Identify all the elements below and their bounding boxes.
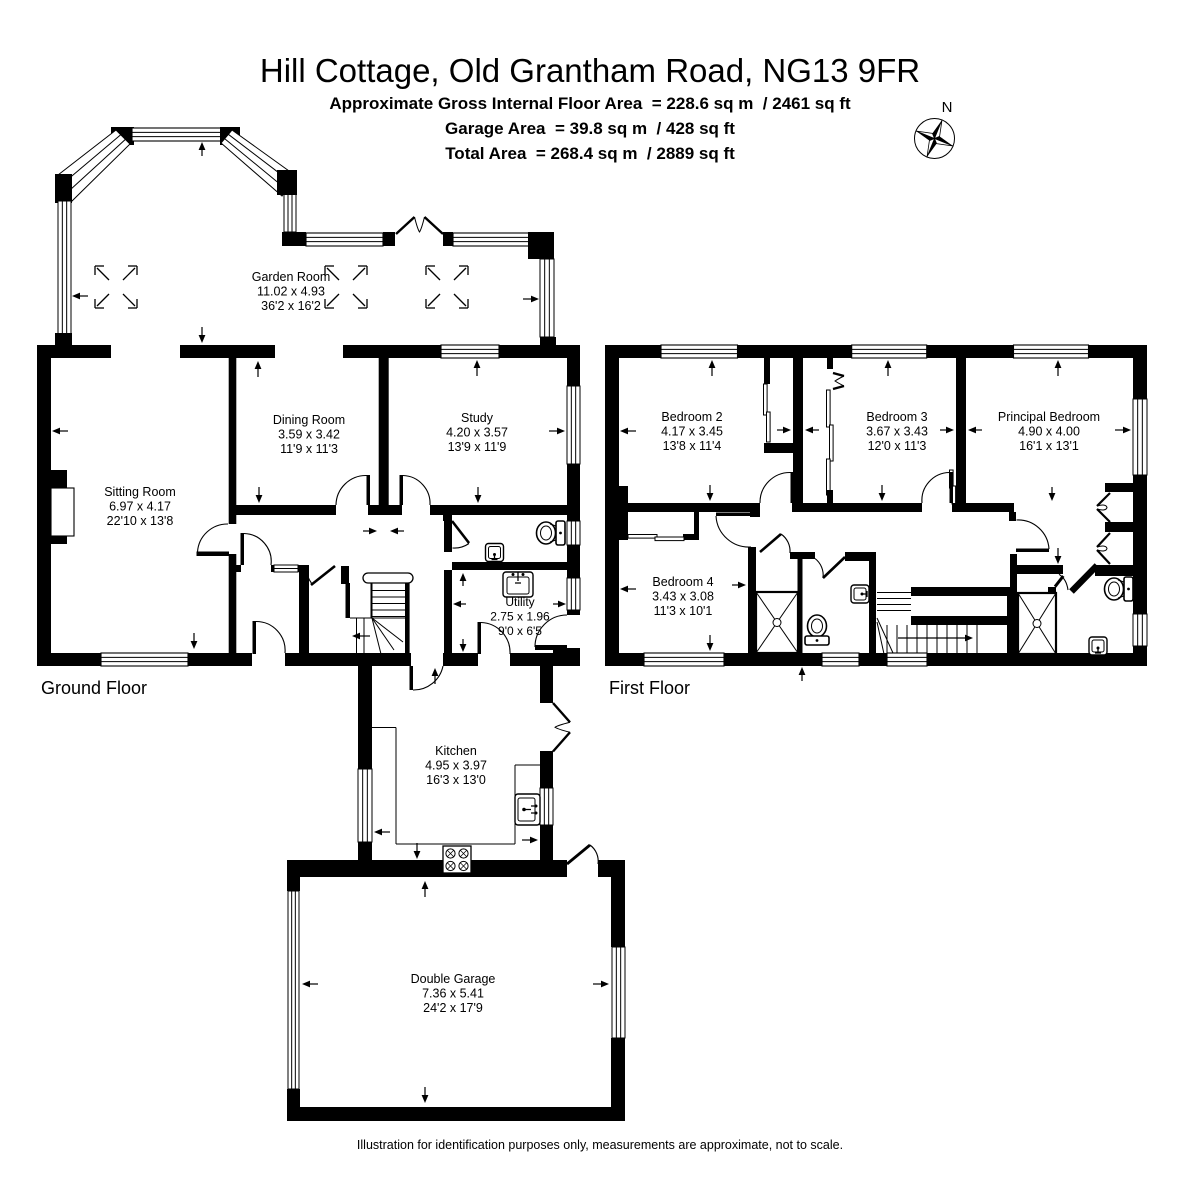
svg-text:Dining Room: Dining Room [273,413,345,427]
svg-text:2.75 x 1.96: 2.75 x 1.96 [490,610,550,624]
svg-text:13'8 x 11'4: 13'8 x 11'4 [663,439,722,453]
svg-text:Kitchen: Kitchen [435,744,477,758]
svg-text:Garden Room: Garden Room [252,270,331,284]
svg-text:22'10 x 13'8: 22'10 x 13'8 [107,514,174,528]
svg-text:11.02 x 4.93: 11.02 x 4.93 [257,285,325,299]
svg-text:Ground Floor: Ground Floor [41,678,147,698]
svg-text:7.36 x 5.41: 7.36 x 5.41 [422,987,484,1001]
svg-text:Approximate Gross Internal Flo: Approximate Gross Internal Floor Area = … [329,94,851,113]
svg-text:9'0 x 6'5: 9'0 x 6'5 [498,624,542,638]
svg-text:First Floor: First Floor [609,678,690,698]
svg-text:Garage Area = 39.8 sq m / 42: Garage Area = 39.8 sq m / 428 sq ft [445,119,735,138]
svg-text:16'1 x 13'1: 16'1 x 13'1 [1019,439,1079,453]
svg-text:24'2 x 17'9: 24'2 x 17'9 [423,1001,483,1015]
svg-text:Total Area = 268.4 sq m / 28: Total Area = 268.4 sq m / 2889 sq ft [445,144,735,163]
svg-text:Study: Study [461,411,494,425]
svg-text:12'0 x 11'3: 12'0 x 11'3 [868,439,927,453]
svg-text:13'9 x 11'9: 13'9 x 11'9 [448,440,507,454]
svg-text:Double Garage: Double Garage [411,972,496,986]
svg-text:Utility: Utility [505,595,534,609]
svg-text:11'3 x 10'1: 11'3 x 10'1 [654,604,713,618]
svg-text:Bedroom 3: Bedroom 3 [866,410,927,424]
svg-text:Bedroom 2: Bedroom 2 [661,410,722,424]
svg-text:4.20 x 3.57: 4.20 x 3.57 [446,426,508,440]
svg-text:6.97 x 4.17: 6.97 x 4.17 [109,500,171,514]
svg-text:4.95 x 3.97: 4.95 x 3.97 [425,759,487,773]
svg-text:11'9 x 11'3: 11'9 x 11'3 [280,442,338,456]
svg-text:4.90 x 4.00: 4.90 x 4.00 [1018,425,1080,439]
svg-text:Sitting Room: Sitting Room [104,485,176,499]
svg-text:16'3 x 13'0: 16'3 x 13'0 [426,773,486,787]
svg-text:N: N [942,99,953,116]
svg-text:36'2 x 16'2: 36'2 x 16'2 [261,299,321,313]
svg-text:3.67 x 3.43: 3.67 x 3.43 [866,425,928,439]
svg-text:3.59 x 3.42: 3.59 x 3.42 [278,428,340,442]
svg-text:3.43 x 3.08: 3.43 x 3.08 [652,590,714,604]
svg-text:Bedroom 4: Bedroom 4 [652,575,713,589]
svg-text:4.17 x 3.45: 4.17 x 3.45 [661,425,723,439]
svg-text:Illustration for identificatio: Illustration for identification purposes… [357,1138,843,1152]
svg-text:Hill Cottage, Old Grantham Roa: Hill Cottage, Old Grantham Road, NG13 9F… [260,52,920,89]
svg-text:Principal Bedroom: Principal Bedroom [998,410,1100,424]
